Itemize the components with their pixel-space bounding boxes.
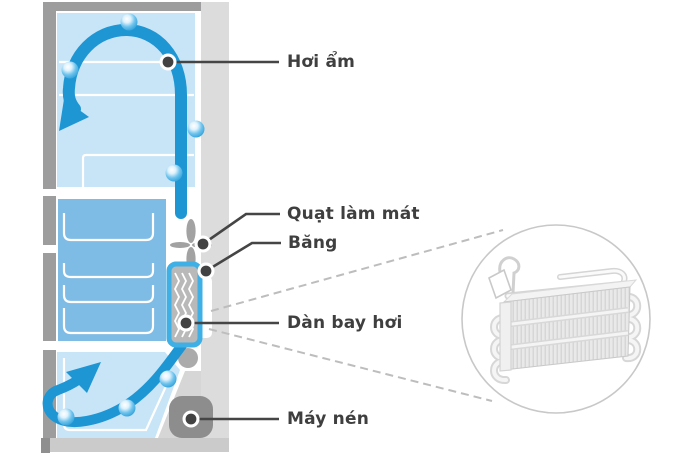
door-gap [43, 341, 56, 350]
fridge-top-wall [43, 2, 201, 11]
label-compressor: Máy nén [287, 409, 369, 429]
label-evaporator: Dàn bay hơi [287, 313, 403, 333]
fridge-door-wall [43, 2, 56, 438]
label-cooling-fan: Quạt làm mát [287, 204, 420, 224]
water-droplet-icon [121, 14, 138, 31]
water-droplet-icon [58, 409, 75, 426]
water-droplet-icon [119, 400, 136, 417]
label-ice: Băng [288, 233, 338, 253]
water-droplet-icon [188, 121, 205, 138]
fin-block-front [504, 287, 630, 370]
callout-dot-ice [198, 263, 215, 280]
magnifier-circle [462, 225, 650, 413]
fridge-base [50, 438, 229, 452]
refrigerator-diagram: Hơi ẩm Quạt làm mát Băng Dàn bay hơi Máy… [0, 0, 690, 458]
freezer-compartment [58, 199, 166, 341]
end-plate [500, 302, 511, 371]
fridge-compartment [57, 13, 195, 187]
callout-dot-compressor [183, 411, 200, 428]
callout-dot-moisture [160, 54, 177, 71]
door-gap [43, 189, 56, 196]
door-gap [43, 245, 56, 253]
fridge-back-panel [201, 2, 229, 438]
callout-dot-evaporator [178, 315, 195, 332]
fridge-foot [41, 438, 50, 453]
water-droplet-icon [160, 371, 177, 388]
evaporator-coil-icon [169, 264, 200, 345]
label-moisture: Hơi ẩm [287, 52, 355, 72]
callout-dot-fan [195, 236, 212, 253]
water-droplet-icon [166, 165, 183, 182]
water-droplet-icon [62, 62, 79, 79]
